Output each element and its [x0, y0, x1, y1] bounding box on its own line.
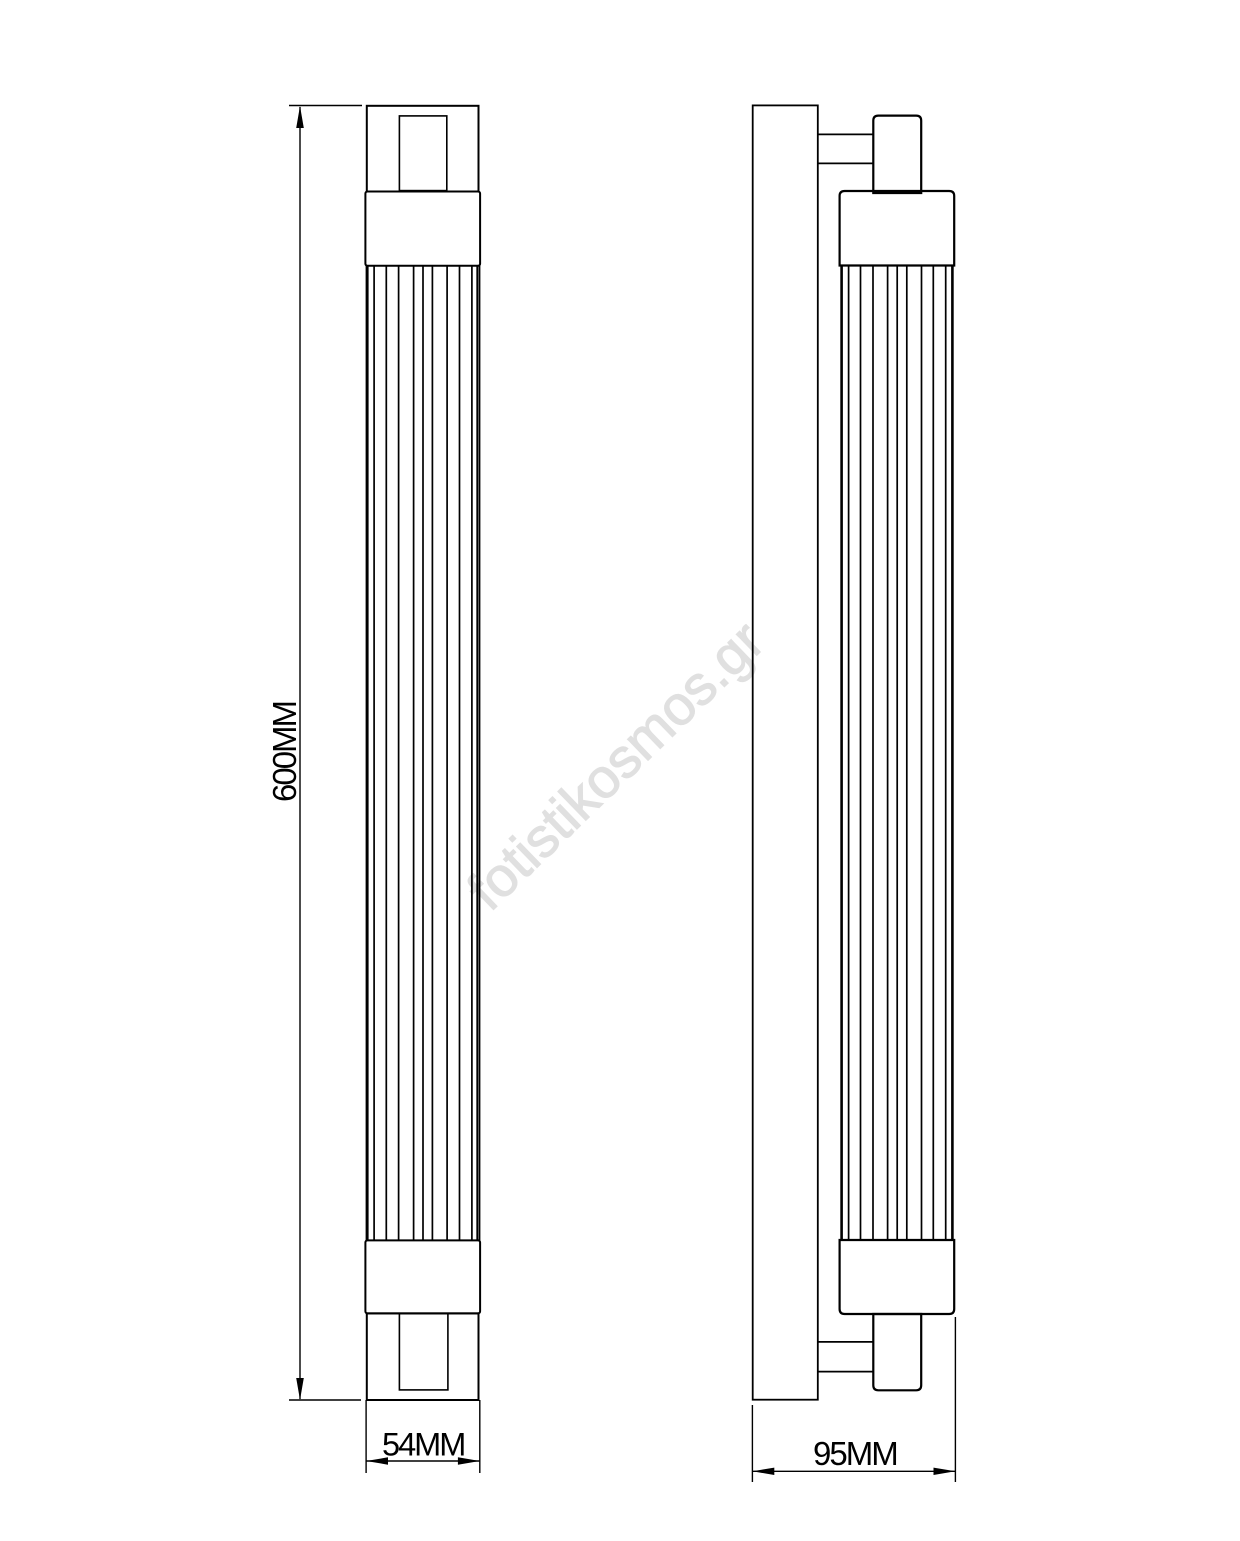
svg-text:95MM: 95MM	[813, 1435, 897, 1472]
svg-text:600MM: 600MM	[266, 702, 303, 802]
svg-text:fotistikosmos.gr: fotistikosmos.gr	[455, 609, 775, 921]
svg-text:54MM: 54MM	[382, 1427, 464, 1463]
